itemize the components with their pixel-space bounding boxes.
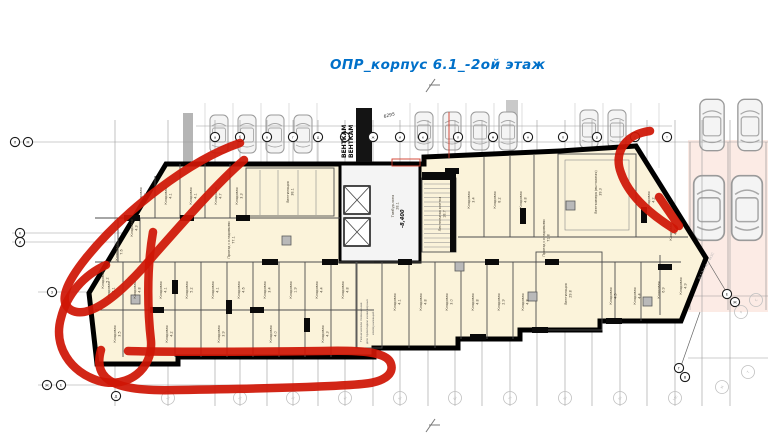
room-label: Венткамера (вытяжная): [594, 170, 598, 214]
room-label: Кладовая: [471, 293, 475, 310]
room-label: Проезд с кладовыми: [227, 221, 231, 258]
room-area: 4.1: [193, 193, 197, 198]
room-area: 77.1: [231, 236, 235, 244]
grid-bubble-label: Л: [14, 140, 17, 144]
tech-room-line3: коммуникаций: [371, 311, 375, 335]
wall-pier: [304, 318, 310, 332]
car-icon: [499, 112, 517, 150]
tech-room-line1: Техническое помещение: [359, 302, 363, 343]
wall-pier: [545, 259, 559, 265]
room-label: Кладовая: [263, 281, 267, 298]
room-label: Кладовая: [237, 281, 241, 298]
room-area: 18.7: [442, 210, 446, 218]
room-label: Кладовая: [164, 187, 168, 204]
room-area: 2.9: [501, 299, 505, 304]
grid-bubble-label: М: [27, 140, 30, 144]
grid-bubble-label: к: [422, 135, 424, 139]
wall-pier: [236, 215, 250, 221]
grid-bubble-label: т: [666, 135, 668, 139]
room-label: Кладовая: [657, 281, 661, 298]
grid-bubble-label: Ж: [45, 383, 49, 387]
room-label: Кладовая: [321, 325, 325, 342]
room-area: 4.5: [613, 293, 617, 298]
room-label: Кладовая: [393, 293, 397, 310]
room-label: Кладовая: [269, 325, 273, 342]
room-area: 4.1: [168, 193, 172, 198]
section-mark-bottom: [426, 419, 440, 432]
room-area: 38.1: [290, 188, 294, 196]
room-area: 5.2: [189, 287, 193, 292]
room-label: Кладовая: [497, 293, 501, 310]
elevation-text: -8,400: [400, 209, 406, 228]
room-label: Кладовая: [211, 281, 215, 298]
room-area: 4.1: [163, 287, 167, 292]
grid-bubble-label: Е: [726, 292, 728, 296]
room-area: 4.4: [319, 287, 323, 292]
wall-pier: [485, 259, 499, 265]
room-label: Кладовая: [521, 293, 525, 310]
ventkam-label-2: ВЕНТКАМ: [348, 125, 355, 158]
room-label: Кладовая: [217, 325, 221, 342]
room-label: Кладовая: [189, 187, 193, 204]
grid-bubble-label: б: [239, 135, 241, 139]
grid-bubble-label: в: [266, 135, 268, 139]
car-icon: [738, 99, 762, 150]
room-area: 4.1: [397, 299, 401, 304]
grid-bubble-label: 9с: [618, 395, 624, 401]
grid-bubble-label: ж: [371, 135, 374, 139]
wall-pier: [398, 259, 412, 265]
room-area: 4.8: [345, 287, 349, 292]
car-icon: [694, 176, 725, 241]
grid-bubble-label: м: [492, 135, 495, 139]
grid-bubble-label: И: [19, 240, 22, 244]
grid-bubble-label: М: [720, 385, 725, 390]
grid-bubble-label: 7с: [508, 395, 514, 401]
room-label: Кладовая: [115, 243, 119, 260]
ventkam-label-1: ВЕНТКАМ: [341, 125, 348, 158]
grid-bubble-label: 8с: [563, 395, 569, 401]
wall-pier: [250, 307, 264, 313]
room-area: 7.6: [119, 249, 123, 254]
wall-pier: [172, 280, 178, 294]
tech-room-line2: для прокладки инженерных: [365, 299, 369, 344]
room-label: Кладовая: [235, 187, 239, 204]
car-icon: [443, 112, 461, 150]
room-label: Тамбур-зона: [391, 195, 395, 218]
room-area: 39.3: [598, 188, 602, 196]
grid-bubble-label: Ж: [733, 300, 737, 304]
room-area: 3.5: [117, 331, 121, 336]
wall-pier: [322, 259, 338, 265]
drawing-title: ОПР_корпус 6.1_-2ой этаж: [330, 57, 545, 73]
room-label: Кладовая: [133, 281, 137, 298]
grid-bubble-label: Д: [115, 394, 118, 398]
room-area: 28.1: [395, 202, 399, 210]
room-label: Вентиляция: [564, 283, 568, 305]
grid-bubble-label: а: [214, 135, 216, 139]
grid-bubble-label: Е: [60, 383, 62, 387]
grid-bubble-label: Т: [746, 370, 751, 375]
dimension-text: 6295: [383, 111, 396, 120]
room-area: 3.0: [449, 299, 453, 304]
room-area: 3.9: [221, 331, 225, 336]
room-area: 4.2: [169, 331, 173, 336]
wall-pier: [226, 300, 232, 314]
room-area: 1.9: [293, 287, 297, 292]
room-area: 4.8: [523, 197, 527, 202]
grid-bubble-label: Г: [678, 366, 680, 370]
room-label: Кладовая: [341, 281, 345, 298]
grid-bubble-label: 6с: [453, 395, 459, 401]
room-area: 4.8: [137, 287, 141, 292]
wall-pier: [445, 168, 459, 174]
room-area: 71.8: [546, 234, 550, 242]
car-icon: [732, 176, 763, 241]
room-label: Вентиляция: [286, 181, 290, 203]
room-area: 4.8: [525, 299, 529, 304]
grid-bubble-label: г: [292, 135, 294, 139]
car-icon: [415, 112, 433, 150]
room-area: 4.8: [423, 299, 427, 304]
room-area: 4.2: [651, 197, 655, 202]
room-area: 29.8: [568, 290, 572, 298]
grid-bubble-label: р: [596, 135, 598, 139]
grid-bubble-label: п: [562, 135, 564, 139]
room-label: Кладовая: [679, 277, 683, 294]
section-mark-top: [426, 79, 440, 92]
grid-bubble-label: З: [51, 290, 53, 294]
room-area: 4.7: [218, 193, 222, 198]
room-label: Проезд с кладовыми: [542, 219, 546, 256]
room-label: Кладовая: [315, 281, 319, 298]
floor-plan-page: Кладовая3.8Кладовая4.1Кладовая4.1Кладова…: [0, 0, 768, 441]
wall-pier: [520, 208, 526, 224]
wall-pier: [532, 327, 548, 333]
wall-pier: [262, 259, 278, 265]
room-area: 4.9: [683, 283, 687, 288]
room-label: Кладовая: [419, 293, 423, 310]
room-area: 8.2: [497, 197, 501, 202]
room-label: Кладовая: [185, 281, 189, 298]
room-label: Кладовая: [445, 293, 449, 310]
room-area: 6.9: [661, 287, 665, 292]
wall-pier: [658, 264, 672, 270]
grid-bubble-label: 10с: [672, 394, 679, 401]
room-label: Кладовая: [165, 325, 169, 342]
room-label: Лестничная клетка: [438, 197, 442, 232]
car-icon: [471, 112, 489, 150]
wall-pier: [470, 334, 486, 340]
grid-bubble-label: 1с: [166, 395, 172, 401]
grid-bubble-label: 5с: [398, 395, 404, 401]
grid-bubble-label: и: [399, 135, 401, 139]
room-label: Кладовая: [493, 191, 497, 208]
room-area: 4.4: [637, 293, 641, 298]
room-label: Кладовая: [519, 191, 523, 208]
room-label: Кладовая: [633, 287, 637, 304]
room-label: Кладовая: [609, 287, 613, 304]
wall-pier: [606, 318, 622, 324]
room-area: 4.3: [325, 331, 329, 336]
room-label: Кладовая: [101, 271, 105, 288]
room-label: Кладовая: [289, 281, 293, 298]
room-area: 4.8: [475, 299, 479, 304]
room-label: Кладовая: [113, 325, 117, 342]
grid-bubble-label: н: [527, 135, 529, 139]
room-area: 3.4: [471, 197, 475, 202]
room-area: 4.1: [215, 287, 219, 292]
room-area: 4.0: [273, 331, 277, 336]
room-area: 4.3: [134, 225, 138, 230]
grid-bubble-label: л: [457, 135, 459, 139]
grid-bubble-label: 2с: [238, 395, 244, 401]
room-area: 3.4: [267, 287, 271, 292]
room-label: Кладовая: [467, 191, 471, 208]
grid-bubble-label: 3с: [291, 395, 297, 401]
room-area: 4.6: [241, 287, 245, 292]
grid-bubble-label: 4с: [343, 395, 349, 401]
room-area: 3.3: [239, 193, 243, 198]
room-label: Кладовая: [130, 219, 134, 236]
room-label: Кладовая: [159, 281, 163, 298]
car-icon: [700, 99, 724, 150]
